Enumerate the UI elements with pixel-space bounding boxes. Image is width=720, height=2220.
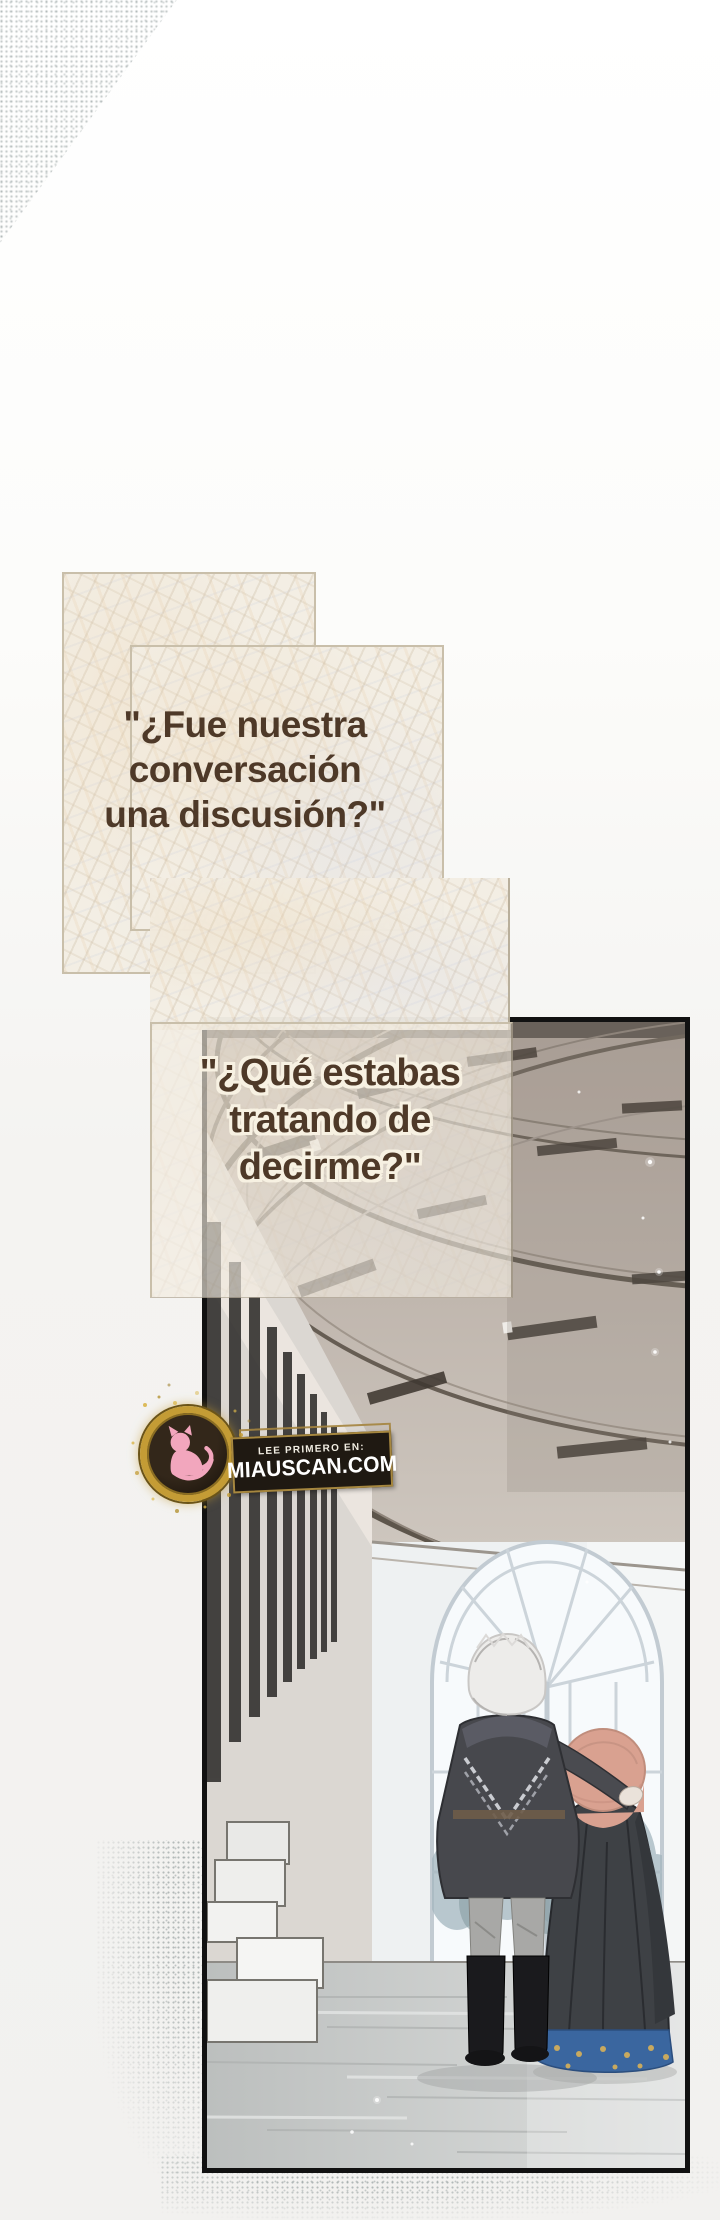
speech-panel-2-block — [150, 878, 510, 1030]
speech-line: tratando de — [163, 1097, 497, 1144]
speech-line: una discusión?" — [95, 792, 395, 837]
scanlation-watermark: LEE PRIMERO EN: MIAUSCAN.COM — [138, 1396, 398, 1516]
watermark-site-url: MIAUSCAN.COM — [227, 1452, 398, 1485]
speech-line: "¿Fue nuestra — [95, 702, 395, 747]
stipple-texture-left — [96, 1840, 212, 2175]
watermark-banner: LEE PRIMERO EN: MIAUSCAN.COM — [231, 1431, 393, 1494]
speech-line: conversación — [95, 747, 395, 792]
speech-bubble-1: "¿Fue nuestra conversación una discusión… — [95, 702, 395, 837]
speech-line: "¿Qué estabas — [163, 1050, 497, 1097]
stipple-texture-top-left — [0, 0, 254, 324]
comic-page: "¿Fue nuestra conversación una discusión… — [0, 0, 720, 2220]
speech-bubble-2: "¿Qué estabas tratando de decirme?" — [163, 1050, 497, 1191]
speech-line: decirme?" — [163, 1144, 497, 1191]
cat-silhouette-icon — [158, 1423, 220, 1485]
